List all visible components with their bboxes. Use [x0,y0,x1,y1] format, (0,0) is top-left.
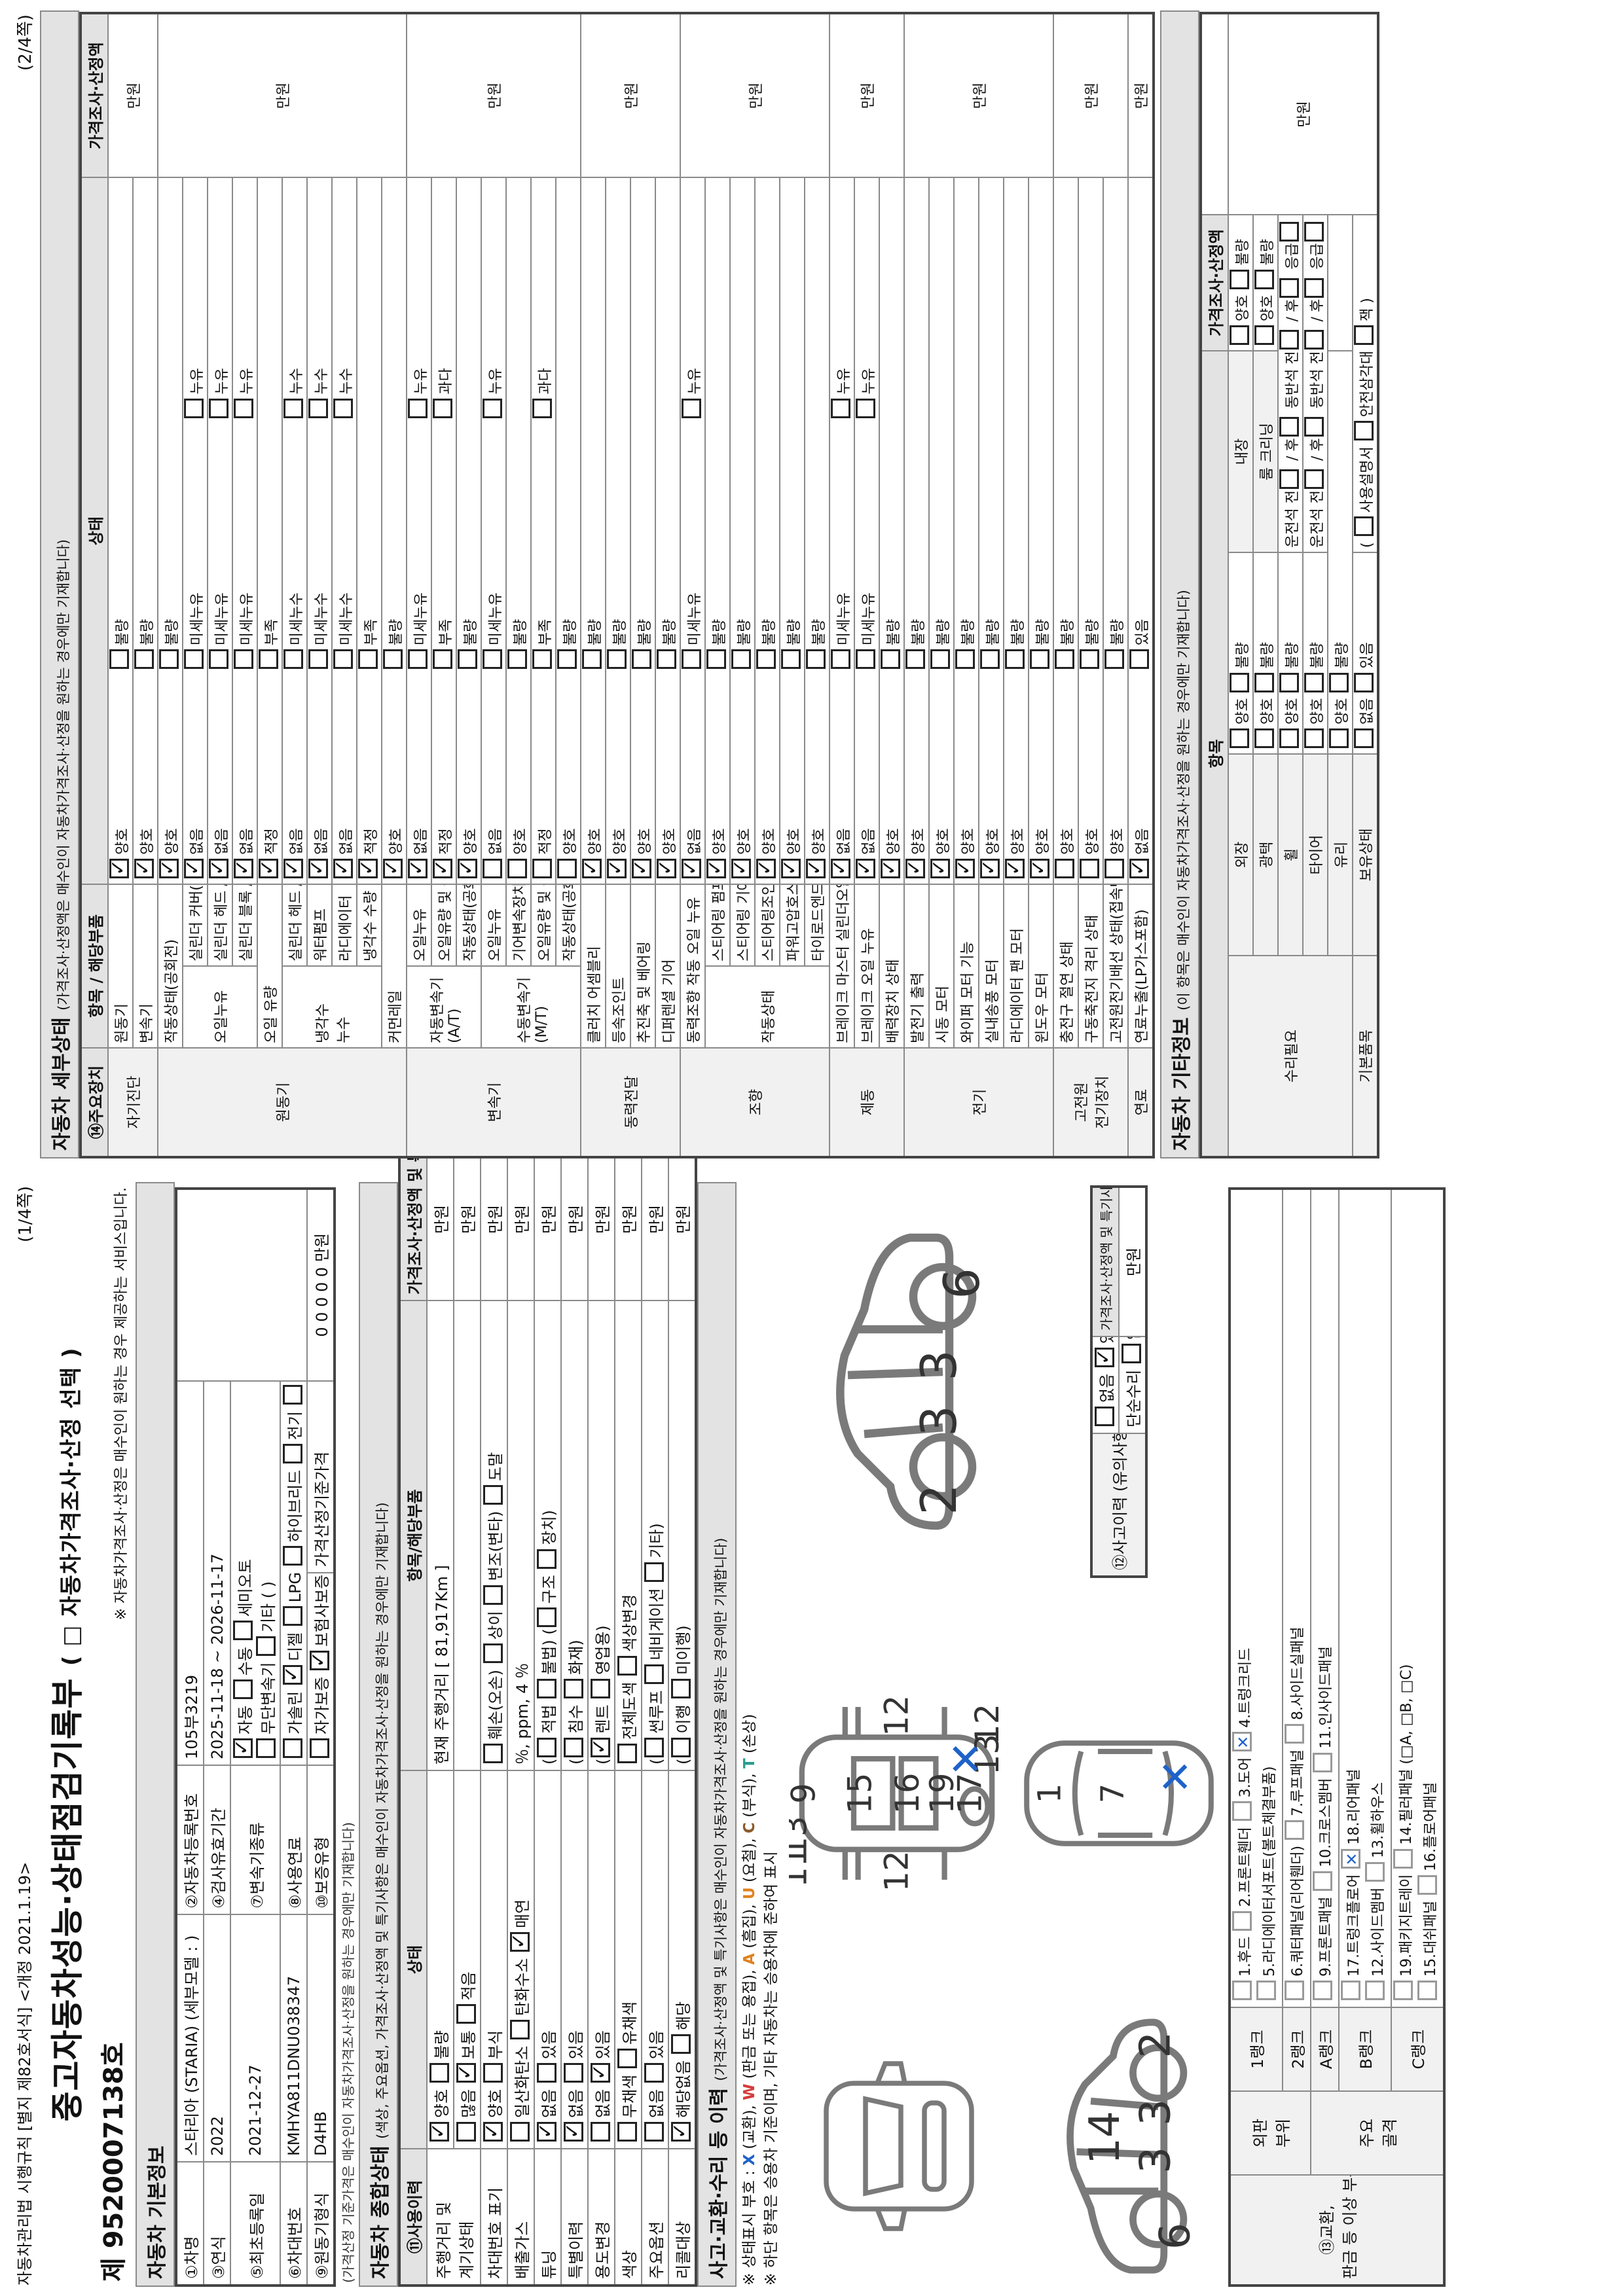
status-options: 없음미세누유누유 [208,177,232,884]
option-checkbox[interactable] [756,859,776,878]
option-checkbox[interactable] [433,859,452,878]
option-checkbox[interactable] [955,859,975,878]
option-checkbox[interactable] [1341,1849,1360,1869]
option-checkbox[interactable] [657,649,676,669]
option-checkbox[interactable] [1080,649,1099,669]
option-checkbox[interactable] [856,399,875,418]
option-checkbox[interactable] [1285,1981,1304,2000]
option-checkbox[interactable] [1341,1981,1360,2000]
option-checkbox[interactable] [617,1744,637,1763]
option-checkbox[interactable] [456,2122,476,2142]
option-checkbox[interactable] [1254,728,1274,748]
option-checkbox[interactable] [433,399,452,418]
option-label: 있음 [1098,1336,1116,1344]
item-label: 추진축 및 베어링 [630,884,655,1048]
detail-state-row: 자기진단원동기양호불량만원 [108,13,133,1157]
rank-name: C랭크 [1391,2007,1444,2091]
option-checkbox[interactable] [607,649,627,669]
option-checkbox[interactable] [408,399,428,418]
option-checkbox[interactable] [1304,222,1324,242]
option-checkbox[interactable] [283,1665,302,1685]
rank-item-label: 3.도어 [1237,1753,1254,1797]
option-checkbox[interactable] [1095,1348,1114,1367]
option-checkbox[interactable] [1354,673,1374,692]
option-checkbox[interactable] [234,859,253,878]
rank-item-label: 16.플로어패널 [1423,1782,1439,1871]
option-checkbox[interactable] [1393,1981,1413,2000]
option-checkbox[interactable] [537,1549,556,1569]
option-label: 기타 ( ) [259,1581,278,1632]
option-checkbox[interactable] [408,649,428,669]
option-checkbox[interactable] [930,649,950,669]
option-checkbox[interactable] [209,859,228,878]
item-label: 디퍼렌셜 기어 [655,884,680,1048]
option-checkbox[interactable] [1417,1875,1437,1895]
option-checkbox[interactable] [591,2122,610,2142]
option-checkbox[interactable] [1230,325,1249,345]
position-options: 운전석 전 / 후 동반석 전 / 후 응급 [1303,215,1328,552]
row-label: 색상 [615,2149,642,2286]
option-checkbox[interactable] [537,1679,556,1698]
option-checkbox[interactable] [537,1607,556,1627]
option-checkbox[interactable] [671,1679,691,1698]
panel-number: 15 [841,1773,879,1814]
option-checkbox[interactable] [881,649,900,669]
option-checkbox[interactable] [1005,859,1025,878]
option-checkbox[interactable] [483,1744,503,1763]
option-checkbox[interactable] [483,1643,503,1663]
option-checkbox[interactable] [308,399,328,418]
option-checkbox[interactable] [283,1606,302,1626]
option-checkbox[interactable] [1304,728,1324,748]
section-detail-state: 자동차 세부상태 (가격조사·산정액은 매수인이 자동차가격조사·산정을 원하는… [40,10,79,1158]
option-checkbox[interactable] [308,649,328,669]
option-checkbox[interactable] [731,859,751,878]
etc-item-label: 유리 [1328,754,1353,956]
column-header: 상태 [399,1770,427,2149]
option-checkbox[interactable] [1030,649,1049,669]
option-checkbox[interactable] [209,399,228,418]
option-checkbox[interactable] [483,399,502,418]
option-checkbox[interactable] [283,1444,302,1463]
option-checkbox[interactable] [905,859,925,878]
option-checkbox[interactable] [109,649,129,669]
detail-state-row: 구동축전지 격리 상태양호불량 [1078,13,1103,1157]
option-checkbox[interactable] [632,859,651,878]
option-checkbox[interactable] [682,649,701,669]
option-checkbox[interactable] [458,649,477,669]
option-checkbox[interactable] [582,859,602,878]
option-checkbox[interactable] [1005,649,1025,669]
option-checkbox[interactable] [1030,859,1049,878]
option-checkbox[interactable] [510,2020,530,2039]
option-checkbox[interactable] [1129,859,1149,878]
rank-item-label: 11.인사이드패널 [1318,1646,1334,1748]
option-label: 양호 [1235,694,1251,725]
option-checkbox[interactable] [358,859,378,878]
option-checkbox[interactable] [1129,649,1149,669]
overall-state-row: 주요옵션없음 있음(썬루프 네비게이션 기타)만원 [642,1138,668,2286]
option-checkbox[interactable] [955,649,975,669]
option-label: 적정 [363,828,380,854]
option-checkbox[interactable] [781,649,801,669]
option-checkbox[interactable] [1256,1981,1276,2000]
option-checkbox[interactable] [1230,673,1249,692]
option-checkbox[interactable] [856,649,875,669]
option-checkbox[interactable] [358,649,378,669]
option-checkbox[interactable] [184,859,204,878]
option-label: 불량 [786,619,803,645]
status-options: 양호불량 [133,177,158,884]
option-label: 세미오토 [236,1559,255,1617]
option-label: 누수 [338,368,355,394]
option-checkbox[interactable] [781,859,801,878]
detail-state-row: 동력전달클러치 어셈블리양호불량만원 [581,13,606,1157]
option-checkbox[interactable] [483,1585,503,1605]
option-checkbox[interactable] [383,859,403,878]
option-checkbox[interactable] [1080,859,1099,878]
option-label: 불량 [1285,642,1301,668]
rank-item-label: 10.크로스멤버 [1318,1774,1334,1867]
mark-code-U: U [741,1887,758,1899]
option-label: 하이브리드 [286,1465,304,1542]
option-checkbox[interactable] [456,2004,476,2024]
option-checkbox[interactable] [233,1679,253,1699]
field-value: 2025-11-18 ~ 2026-11-17 [204,1381,230,1765]
option-checkbox[interactable] [483,2122,503,2142]
field-value: 2022 [204,1914,230,2162]
option-checkbox[interactable] [564,2122,583,2142]
service-note: ※ 자동차가격조사·산정은 매수인이 원하는 경우 제공하는 서비스입니다. [109,1187,130,1620]
option-checkbox[interactable] [283,1385,302,1405]
option-checkbox[interactable] [706,649,726,669]
option-checkbox[interactable] [591,1738,610,1757]
status-options: 양호불량 [606,177,630,884]
option-label: 불량 [1010,619,1027,645]
option-label: 영업용) [594,1625,612,1675]
price-cell: 만원 [1053,13,1128,177]
option-checkbox[interactable] [1354,516,1374,536]
option-checkbox[interactable] [109,859,129,878]
option-checkbox[interactable] [644,1664,664,1684]
option-checkbox[interactable] [591,2063,610,2083]
legend-text: (교환), [741,2100,758,2154]
item-label: 동력조향 작동 오일 누유 [680,884,705,1048]
option-checkbox[interactable] [134,649,154,669]
option-checkbox[interactable] [532,859,552,878]
option-checkbox[interactable] [256,1738,276,1758]
option-checkbox[interactable] [283,649,303,669]
overall-state-row: 배출가스일산화탄소 탄화수소 매연％, ppm, 4 ％만원 [507,1138,534,2286]
option-label: 기타) [647,1523,666,1558]
option-checkbox[interactable] [233,1621,253,1640]
option-checkbox[interactable] [682,399,701,418]
option-checkbox[interactable] [644,1562,664,1582]
option-label: 누유 [189,368,206,394]
option-checkbox[interactable] [1104,859,1124,878]
option-checkbox[interactable] [308,859,328,878]
option-checkbox[interactable] [333,649,353,669]
option-checkbox[interactable] [429,2063,449,2083]
option-checkbox[interactable] [591,1679,610,1698]
status-options: 없음미세누유누유 [481,177,506,884]
option-checkbox[interactable] [731,649,751,669]
option-checkbox[interactable] [1055,649,1074,669]
option-checkbox[interactable] [1254,673,1274,692]
rank-item-label: 7.루프패널 [1290,1745,1306,1816]
option-checkbox[interactable] [980,859,1000,878]
option-checkbox[interactable] [134,859,154,878]
option-checkbox[interactable] [483,649,502,669]
mark-code-C: C [741,1822,758,1833]
option-label: 누유 [687,368,703,394]
sub-item-label: 실린더 블록 / 오일팬 [232,884,257,966]
detail-state-row: 오일 유량적정부족 [257,13,282,1157]
option-label: 렌트 [594,1700,612,1734]
option-checkbox[interactable] [1365,1862,1385,1882]
status-options: 없음미세누수누수 [307,177,332,884]
rank-item-label: 4.트렁크리드 [1237,1648,1254,1728]
option-checkbox[interactable] [233,1738,253,1758]
panel-number: 6 [1150,2223,1199,2250]
option-checkbox[interactable] [256,1636,276,1656]
option-label: / 후 [1285,438,1301,465]
option-checkbox[interactable] [831,399,850,418]
option-checkbox[interactable] [1279,330,1299,350]
option-checkbox[interactable] [671,2034,691,2054]
option-checkbox[interactable] [831,859,850,878]
option-label: 동반석 전 [1285,351,1301,413]
option-checkbox[interactable] [856,859,875,878]
option-checkbox[interactable] [537,2063,556,2083]
option-checkbox[interactable] [1232,1911,1252,1931]
title-price-option[interactable]: ( □ 자동차가격조사·산정 선택 ) [58,1348,84,1666]
option-checkbox[interactable] [657,859,676,878]
option-checkbox[interactable] [1230,728,1249,748]
exchange-x-mark: ✕ [1152,1759,1200,1795]
option-checkbox[interactable] [1329,673,1349,692]
legend-text: ※ 상태표시 부호 : [741,2166,758,2286]
option-checkbox[interactable] [537,1738,556,1757]
option-checkbox[interactable] [881,859,900,878]
page-1: 자동차관리법 시행규칙 [별지 제82호서식] <개정 2021.1.19> (… [0,1175,1623,2296]
status-options: 양호불량 [1053,177,1078,884]
option-checkbox[interactable] [1232,1801,1252,1821]
option-checkbox[interactable] [1104,649,1124,669]
option-checkbox[interactable] [682,859,701,878]
option-checkbox[interactable] [283,399,303,418]
option-label: 무채색 [621,2070,639,2118]
option-checkbox[interactable] [756,649,776,669]
option-checkbox[interactable] [1279,278,1299,298]
option-checkbox[interactable] [333,859,353,878]
option-checkbox[interactable] [644,1738,664,1757]
option-checkbox[interactable] [259,859,278,878]
option-label: 도말 [486,1452,505,1481]
option-checkbox[interactable] [259,649,278,669]
option-checkbox[interactable] [532,399,552,418]
option-checkbox[interactable] [1354,325,1374,345]
option-checkbox[interactable] [283,859,303,878]
option-checkbox[interactable] [507,649,527,669]
option-checkbox[interactable] [184,649,204,669]
option-checkbox[interactable] [1354,421,1374,440]
option-checkbox[interactable] [564,1679,583,1698]
option-checkbox[interactable] [671,1738,691,1757]
extra-options: 현재 주행거리 [ 81,917Km ] [427,1300,454,1770]
option-label: 불량 [911,619,927,645]
option-checkbox[interactable] [383,649,403,669]
overall-state-row: 튜닝없음 있음(적법 불법) (구조 장치)만원 [534,1138,561,2286]
option-checkbox[interactable] [806,649,826,669]
option-checkbox[interactable] [644,2122,664,2142]
option-checkbox[interactable] [1279,728,1299,748]
status-options: 없음 있음 [642,1770,668,2149]
option-checkbox[interactable] [159,859,179,878]
option-checkbox[interactable] [617,2122,637,2142]
option-checkbox[interactable] [1304,469,1324,489]
option-checkbox[interactable] [1232,1981,1252,2000]
mark-code-A: A [741,1953,758,1965]
option-checkbox[interactable] [617,1656,637,1676]
option-checkbox[interactable] [980,649,1000,669]
option-checkbox[interactable] [1279,417,1299,437]
option-checkbox[interactable] [333,399,353,418]
option-label: 불량 [139,619,156,645]
option-checkbox[interactable] [1230,270,1249,289]
option-checkbox[interactable] [537,2122,556,2142]
device-group-label: 자기진단 [108,1048,158,1157]
option-checkbox[interactable] [1055,859,1074,878]
option-checkbox[interactable] [1329,728,1349,748]
option-checkbox[interactable] [1365,1981,1385,2000]
option-checkbox[interactable] [1279,469,1299,489]
option-checkbox[interactable] [706,859,726,878]
sub-item-label: 스티어링 기어(MDPS포함) [730,884,755,966]
option-checkbox[interactable] [1393,1849,1413,1869]
item-label: 발전기 출력 [904,884,929,1048]
device-group-label: 변속기 [407,1048,581,1157]
sub-item-label: 기어변속장치 [506,884,531,966]
item-label: 원동기 [108,884,133,1048]
option-checkbox[interactable] [1417,1981,1437,2000]
option-checkbox[interactable] [510,1932,530,1952]
option-checkbox[interactable] [408,859,428,878]
option-label: 미세누유 [488,592,504,645]
legend-text: (판금 또는 용접), [741,1965,758,2083]
option-checkbox[interactable] [310,1651,329,1670]
option-checkbox[interactable] [564,2063,583,2083]
option-checkbox[interactable] [1254,270,1274,289]
option-checkbox[interactable] [1232,1732,1252,1751]
option-checkbox[interactable] [507,859,527,878]
option-checkbox[interactable] [458,859,477,878]
option-checkbox[interactable] [283,1546,302,1566]
price-cell: 만원 [904,13,1053,177]
option-checkbox[interactable] [1122,1344,1141,1363]
option-checkbox[interactable] [310,1738,329,1758]
option-checkbox[interactable] [1279,673,1299,692]
option-checkbox[interactable] [1304,330,1324,350]
option-checkbox[interactable] [1254,325,1274,345]
option-checkbox[interactable] [1285,1820,1304,1840]
option-checkbox[interactable] [1285,1724,1304,1744]
status-options: 적정부족 [257,177,282,884]
extra-options: (렌트 영업용) [588,1300,615,1770]
option-label: 미세누수 [338,592,355,645]
option-label: 부족 [538,619,554,645]
option-checkbox[interactable] [905,649,925,669]
option-checkbox[interactable] [644,2063,664,2083]
price-header: 가격조사·산정액 및 특기사항 [1091,1187,1119,1336]
item-label: 배력장치 상태 [879,884,904,1048]
option-checkbox[interactable] [557,649,577,669]
option-label: 누유 [836,368,852,394]
option-checkbox[interactable] [456,2063,476,2083]
panel-number: 12 [877,1695,915,1736]
option-checkbox[interactable] [1304,417,1324,437]
option-checkbox[interactable] [209,649,228,669]
row-label: 튜닝 [534,2149,561,2286]
option-checkbox[interactable] [429,2122,449,2142]
option-checkbox[interactable] [1313,1871,1332,1891]
option-checkbox[interactable] [632,649,651,669]
option-checkbox[interactable] [671,2122,691,2142]
option-checkbox[interactable] [806,859,826,878]
option-checkbox[interactable] [557,859,577,878]
option-checkbox[interactable] [234,399,253,418]
option-checkbox[interactable] [582,649,602,669]
option-checkbox[interactable] [1313,1981,1332,2000]
option-checkbox[interactable] [234,649,253,669]
option-checkbox[interactable] [433,649,452,669]
option-label: 양호 [662,828,678,854]
option-label: 양호 [388,828,405,854]
basic-info-row: ⑨원동기형식D4HB⑩보증유형자가보증 보험사보증 (선택시 해보험)가격산정기… [307,1189,335,2286]
rank-item-label: 13.휠하우스 [1370,1782,1387,1858]
option-checkbox[interactable] [283,1738,302,1758]
option-checkbox[interactable] [1313,1753,1332,1772]
field-value: 자동 수동 세미오토무단변속기 기타 ( ) [230,1381,280,1765]
price-cell: 만원 [1128,13,1154,177]
page-title: 중고자동차성능·상태점검기록부 ( □ 자동차가격조사·산정 선택 ) [41,1182,88,2287]
option-checkbox[interactable] [483,2063,503,2083]
option-checkbox[interactable] [1304,278,1324,298]
option-checkbox[interactable] [1279,222,1299,242]
option-checkbox[interactable] [510,2122,530,2142]
option-checkbox[interactable] [930,859,950,878]
option-checkbox[interactable] [607,859,627,878]
option-checkbox[interactable] [159,649,179,669]
field-label: ⑤최초등록일 [230,2162,280,2286]
option-checkbox[interactable] [831,649,850,669]
option-checkbox[interactable] [617,2049,637,2068]
option-checkbox[interactable] [532,649,552,669]
panel-number: 12 [968,1704,1005,1745]
option-label: 안전삼각대 [1359,346,1376,417]
option-checkbox[interactable] [483,1485,503,1505]
option-checkbox[interactable] [564,1738,583,1757]
option-checkbox[interactable] [1095,1407,1114,1426]
option-checkbox[interactable] [184,399,204,418]
option-label: 디젤 [286,1627,304,1661]
option-checkbox[interactable] [483,859,502,878]
option-checkbox[interactable] [1354,728,1374,748]
option-checkbox[interactable] [1304,673,1324,692]
status-options: 양호불량 [780,177,805,884]
panel-number: 3 [1131,2147,1180,2174]
option-label: 이행 [674,1700,693,1734]
